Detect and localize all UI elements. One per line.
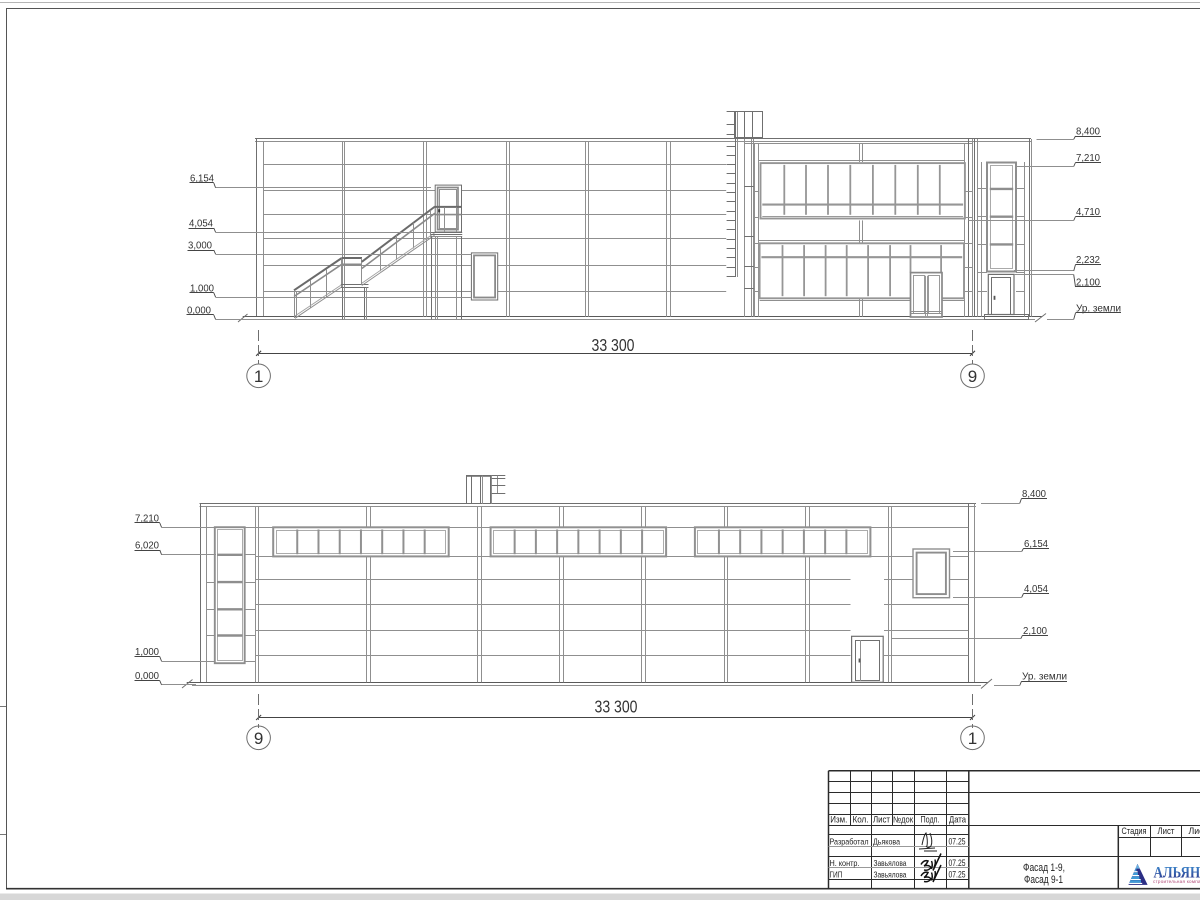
- svg-text:Завьялова: Завьялова: [874, 858, 907, 868]
- svg-text:Завьялова: Завьялова: [874, 869, 907, 879]
- svg-text:Разработал: Разработал: [830, 837, 869, 847]
- svg-text:Изм.: Изм.: [830, 814, 847, 824]
- svg-text:Фасад 9-1: Фасад 9-1: [1024, 874, 1063, 886]
- svg-text:Подп.: Подп.: [921, 814, 940, 824]
- svg-text:3,000: 3,000: [188, 241, 212, 252]
- svg-text:Фасад 1-9,: Фасад 1-9,: [1023, 862, 1065, 874]
- svg-text:8,400: 8,400: [1076, 127, 1100, 138]
- svg-text:07.25: 07.25: [949, 837, 966, 847]
- svg-text:9: 9: [968, 367, 977, 386]
- svg-text:строительная компания: строительная компания: [1153, 879, 1200, 884]
- svg-text:1: 1: [968, 729, 977, 748]
- svg-text:Лист: Лист: [873, 814, 890, 824]
- svg-text:07.25: 07.25: [949, 858, 966, 868]
- svg-text:Дата: Дата: [949, 814, 966, 824]
- svg-text:Лис: Лис: [1189, 826, 1200, 836]
- svg-text:Дьякова: Дьякова: [873, 837, 900, 847]
- svg-text:Стадия: Стадия: [1122, 826, 1147, 836]
- svg-text:Н. контр.: Н. контр.: [830, 858, 860, 868]
- svg-text:33 300: 33 300: [595, 697, 638, 717]
- svg-text:ГИП: ГИП: [830, 869, 843, 879]
- svg-text:6,020: 6,020: [135, 540, 159, 551]
- svg-text:4,054: 4,054: [189, 219, 213, 230]
- svg-text:Кол.: Кол.: [853, 814, 869, 824]
- svg-text:Лист: Лист: [1158, 826, 1175, 836]
- svg-text:07.25: 07.25: [949, 869, 966, 879]
- svg-text:33 300: 33 300: [592, 335, 635, 355]
- svg-text:№док: №док: [893, 814, 913, 824]
- svg-text:1: 1: [254, 367, 263, 386]
- svg-text:9: 9: [254, 729, 263, 748]
